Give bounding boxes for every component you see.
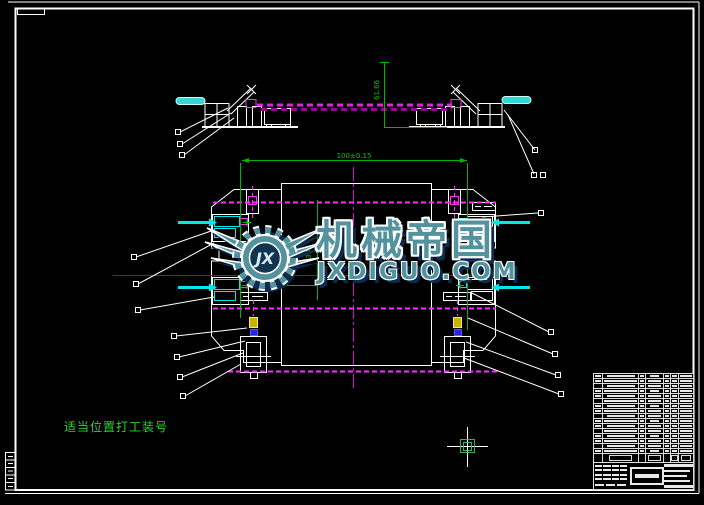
process-note: 适当位置打工装号 <box>64 418 168 435</box>
clamp-handle-left <box>176 98 205 105</box>
dim-height-label: 61.66 <box>373 79 381 100</box>
cad-screenshot: 100±0.15 61.66 386 <box>0 0 704 505</box>
bom-table <box>593 373 694 463</box>
bottom-clamp-right <box>440 300 475 379</box>
title-block <box>593 373 694 490</box>
clamp-handle-right <box>502 97 531 104</box>
chain-line <box>257 105 452 110</box>
title-block-signature-grid <box>594 463 628 482</box>
cursor-crosshair <box>447 427 488 467</box>
title-block-bottom <box>593 463 694 490</box>
dim-width-label: 100±0.15 <box>337 152 372 160</box>
title-block-info <box>664 464 693 488</box>
watermark-domain-text: JXDIGUO.COM <box>317 261 518 284</box>
drawing-number-box <box>630 467 664 485</box>
watermark-brand-text: 机械帝国 <box>316 220 496 261</box>
title-block-strip <box>594 482 628 488</box>
bom-row-header <box>594 454 693 462</box>
bottom-clamp-left <box>236 300 271 379</box>
watermark-monogram: JX <box>253 249 275 268</box>
